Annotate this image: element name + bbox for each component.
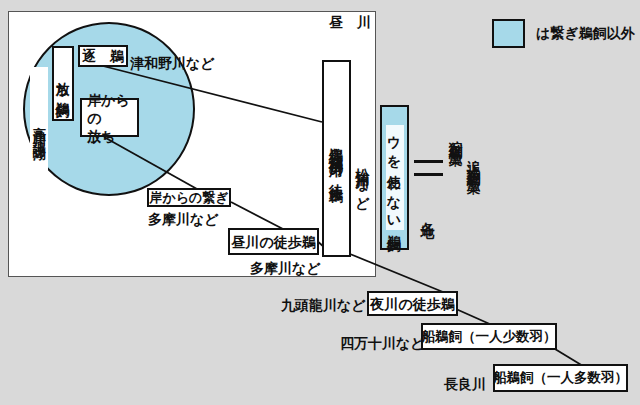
node-kishi-kara-no-hanachi: 岸からの 放ち (80, 98, 139, 137)
node-u-wo-tsukawanai-ukai: ウを使わない鵜飼 (380, 105, 409, 250)
diagram-canvas: { "colors": { "background": "#d9d9d9", "… (0, 0, 640, 405)
water-label-takatsu-suwa: 高津川・諏訪湖 (30, 67, 48, 190)
annotation-nagara-river: 長良川 (444, 376, 486, 394)
annotation-kuzuryu-river: 九頭龍川など (281, 297, 366, 315)
annotation-tamagawa-2: 多摩川など (250, 260, 321, 278)
node-funaukai-many-birds: 船鵜飼（一人多数羽） (493, 364, 628, 392)
panel-corner-label: 昼 川 (329, 14, 371, 32)
node-u-wo-tsukawanai-ukai-label: ウを使わない鵜飼 (386, 125, 404, 231)
node-hirukawa-kachiu: 昼川の徒歩鵜 (228, 228, 319, 255)
annotation-kakuchi: 各地 (419, 211, 437, 217)
node-yokawa-kachiu: 夜川の徒歩鵜 (367, 291, 458, 316)
annotation-shimanto-river: 四万十川など (340, 335, 425, 353)
node-oi-u: 逐 鵜 (78, 45, 128, 67)
annotation-kari-sashiami-gyogyo: 狩刺網漁業 (446, 130, 464, 145)
annotation-oikomi-shiki-sashiami-gyogyo: 追込式刺網漁業 (464, 149, 482, 174)
annotation-tsuwano-river: 津和野川など (130, 55, 215, 73)
legend-label: は繋ぎ鵜飼以外 (536, 25, 635, 43)
equals-connector (414, 160, 443, 176)
node-kishi-kara-no-tsunagi: 岸からの繋ぎ (147, 188, 231, 207)
annotation-matsuura-river: 松浦川など (354, 157, 372, 206)
node-unawa-usao-heiyo-kachiu: 鵜縄・鵜棹併用の徒歩鵜 (322, 60, 351, 257)
node-funaukai-few-birds: 船鵜飼（一人少数羽） (421, 323, 557, 350)
node-hanachi-ukai: 放ち鵜飼 (52, 46, 74, 121)
annotation-tamagawa-1: 多摩川など (148, 211, 219, 229)
legend-blue-swatch (492, 19, 525, 48)
